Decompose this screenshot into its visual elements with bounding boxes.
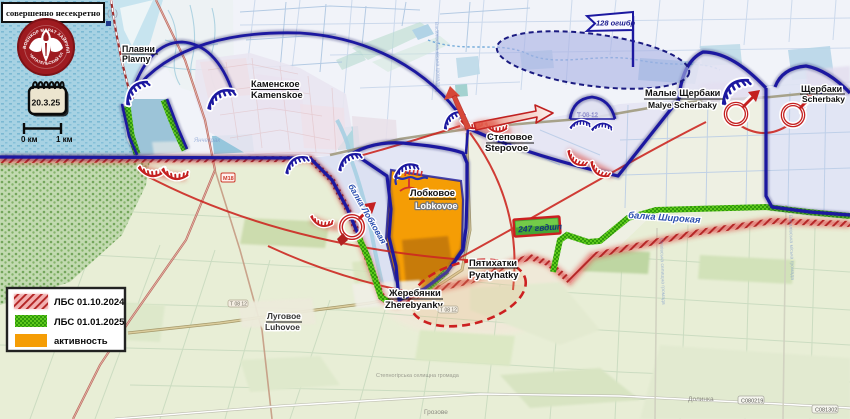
svg-text:Luhovoe: Luhovoe <box>265 322 300 332</box>
svg-text:Грозове: Грозове <box>424 409 448 416</box>
svg-text:Каменское: Каменское <box>251 79 300 89</box>
svg-text:Щербаки: Щербаки <box>801 84 842 94</box>
svg-text:ЛБС 01.10.2024: ЛБС 01.10.2024 <box>54 297 125 308</box>
svg-text:Степногірська селищна громада: Степногірська селищна громада <box>376 373 460 379</box>
svg-text:Т-08-12: Т-08-12 <box>577 113 599 119</box>
svg-text:128 огшбр: 128 огшбр <box>596 19 635 28</box>
svg-text:Лобковое: Лобковое <box>410 187 455 198</box>
svg-text:Т 08 12: Т 08 12 <box>440 308 457 314</box>
svg-text:0 км: 0 км <box>21 135 38 144</box>
svg-text:Stepovoe: Stepovoe <box>485 143 528 154</box>
svg-text:Malye Scherbaky: Malye Scherbaky <box>648 100 717 110</box>
svg-text:Pyatyhatky: Pyatyhatky <box>469 269 519 280</box>
svg-text:Plavny: Plavny <box>122 54 150 64</box>
svg-text:совершенно несекретно: совершенно несекретно <box>6 8 101 18</box>
svg-text:Пятихатки: Пятихатки <box>469 257 517 268</box>
svg-text:М18: М18 <box>223 176 234 182</box>
svg-text:ЛБС 01.01.2025: ЛБС 01.01.2025 <box>54 317 125 328</box>
svg-text:активность: активность <box>54 336 108 347</box>
svg-text:1 км: 1 км <box>56 135 73 144</box>
svg-text:Жеребянки: Жеребянки <box>388 287 441 298</box>
svg-text:Т 08 12: Т 08 12 <box>230 302 247 308</box>
svg-text:Янчекрак: Янчекрак <box>193 138 221 144</box>
svg-text:20.3.25: 20.3.25 <box>32 98 61 108</box>
svg-text:Плавни: Плавни <box>122 44 155 54</box>
svg-text:Луговое: Луговое <box>267 311 301 321</box>
svg-text:Малые Щербаки: Малые Щербаки <box>645 88 721 98</box>
svg-text:Долинка: Долинка <box>688 396 714 403</box>
svg-text:C080219: C080219 <box>741 399 763 405</box>
svg-text:Lobkovoe: Lobkovoe <box>415 201 458 211</box>
svg-text:C081302: C081302 <box>815 408 837 414</box>
svg-text:(L): (L) <box>107 8 118 18</box>
svg-text:Zherebyanky: Zherebyanky <box>385 299 444 310</box>
svg-text:Kamenskoe: Kamenskoe <box>251 90 303 100</box>
svg-text:Scherbaky: Scherbaky <box>802 94 845 104</box>
svg-text:Степовое: Степовое <box>487 132 533 143</box>
